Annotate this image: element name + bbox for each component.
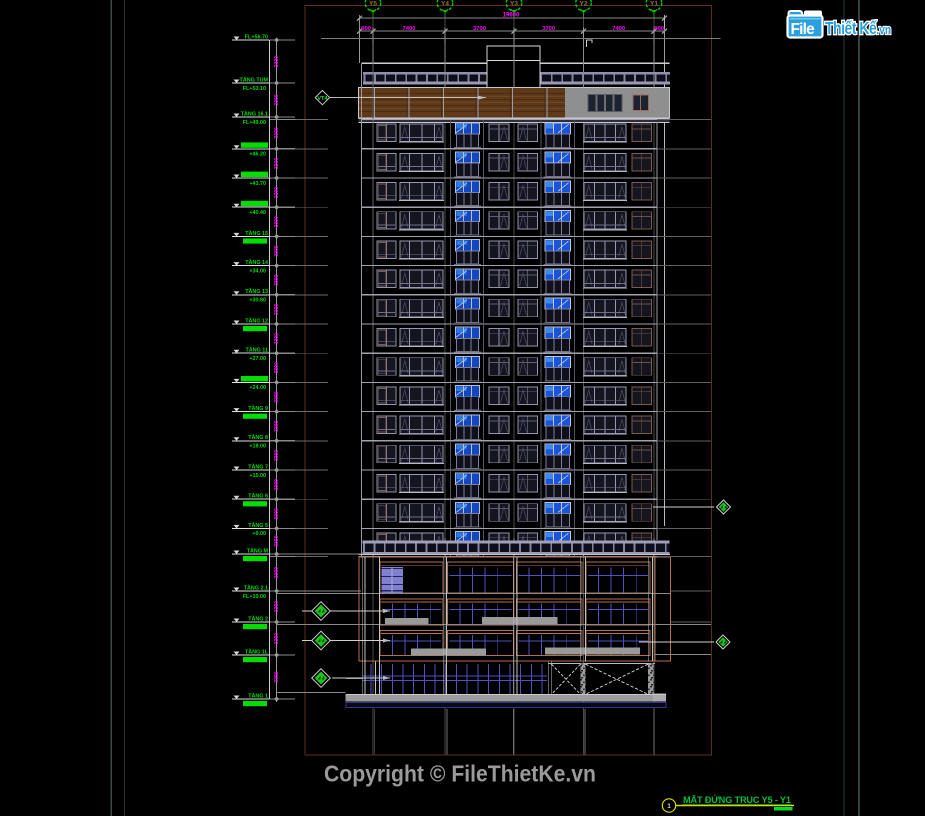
- svg-text:+27.00: +27.00: [249, 356, 266, 362]
- svg-text:3300: 3300: [274, 420, 280, 431]
- svg-text:Y3: Y3: [510, 1, 518, 8]
- svg-text:VT4: VT4: [317, 96, 328, 102]
- svg-text:3700: 3700: [473, 26, 486, 32]
- svg-text:7400: 7400: [403, 26, 416, 32]
- svg-text:TẦNG 1L: TẦNG 1L: [245, 648, 269, 655]
- svg-text:TẦNG 15: TẦNG 15: [245, 230, 268, 237]
- svg-text:File: File: [791, 21, 816, 38]
- svg-text:TẦNG 7: TẦNG 7: [248, 463, 268, 470]
- svg-text:+15.00: +15.00: [249, 473, 266, 479]
- svg-text:+30.80: +30.80: [249, 298, 266, 304]
- svg-text:TẦNG TUM: TẦNG TUM: [240, 76, 269, 83]
- svg-text:3300: 3300: [274, 333, 280, 344]
- svg-text:TẦNG 2.1: TẦNG 2.1: [244, 584, 268, 591]
- svg-text:TẦNG 6: TẦNG 6: [248, 493, 268, 500]
- svg-text:3300: 3300: [274, 362, 280, 373]
- svg-text:TẦNG M: TẦNG M: [247, 547, 269, 554]
- svg-text:+46.20: +46.20: [249, 152, 266, 158]
- svg-text:3300: 3300: [274, 216, 280, 227]
- svg-text:TẦNG 16.1: TẦNG 16.1: [241, 110, 268, 117]
- svg-text:900: 900: [361, 26, 371, 32]
- svg-text:FL+53.10: FL+53.10: [243, 86, 266, 92]
- svg-text:MẶT ĐỨNG TRỤC Y5 - Y1: MẶT ĐỨNG TRỤC Y5 - Y1: [683, 794, 791, 805]
- svg-text:TẦNG 8: TẦNG 8: [248, 434, 268, 441]
- svg-text:3300: 3300: [274, 601, 280, 612]
- svg-text:900: 900: [654, 26, 664, 32]
- svg-text:+9.00: +9.00: [252, 531, 266, 537]
- svg-text:+24.00: +24.00: [249, 385, 266, 391]
- svg-text:3300: 3300: [274, 187, 280, 198]
- svg-text:Y2: Y2: [580, 1, 588, 8]
- svg-text:3300: 3300: [274, 567, 280, 578]
- svg-text:FL+56.70: FL+56.70: [245, 34, 268, 40]
- svg-text:Copyright © FileThietKe.vn: Copyright © FileThietKe.vn: [324, 761, 596, 787]
- svg-text:3300: 3300: [274, 479, 280, 490]
- svg-text:TẦNG 12: TẦNG 12: [245, 317, 268, 324]
- svg-text:3300: 3300: [274, 304, 280, 315]
- svg-text:TẦNG 9: TẦNG 9: [248, 405, 268, 412]
- svg-text:3300: 3300: [274, 450, 280, 461]
- svg-text:3300: 3300: [274, 245, 280, 256]
- svg-text:3300: 3300: [274, 94, 280, 105]
- svg-text:3300: 3300: [274, 158, 280, 169]
- svg-text:3300: 3300: [274, 633, 280, 644]
- svg-text:3700: 3700: [542, 26, 555, 32]
- svg-text:7400: 7400: [612, 26, 625, 32]
- svg-text:.vn: .vn: [876, 23, 891, 37]
- svg-text:Y1: Y1: [650, 1, 658, 8]
- svg-text:3300: 3300: [274, 274, 280, 285]
- svg-text:FL+49.00: FL+49.00: [243, 120, 266, 126]
- svg-text:TẦNG 2: TẦNG 2: [248, 615, 268, 622]
- svg-text:19600: 19600: [503, 12, 520, 18]
- svg-text:TẦNG 11: TẦNG 11: [246, 347, 268, 354]
- svg-text:+40.40: +40.40: [249, 210, 266, 216]
- svg-text:TẦNG 1: TẦNG 1: [248, 692, 268, 699]
- svg-text:Thiết Kế: Thiết Kế: [825, 19, 877, 38]
- svg-text:3300: 3300: [274, 671, 280, 682]
- svg-text:3300: 3300: [274, 127, 280, 138]
- svg-text:TẦNG 14: TẦNG 14: [245, 259, 268, 266]
- svg-text:FL+10.00: FL+10.00: [243, 594, 266, 600]
- svg-text:3300: 3300: [274, 391, 280, 402]
- svg-text:TẦNG 13: TẦNG 13: [245, 288, 268, 295]
- svg-text:3300: 3300: [274, 56, 280, 67]
- svg-text:Y4: Y4: [441, 1, 449, 8]
- svg-text:+18.00: +18.00: [249, 444, 266, 450]
- svg-text:TẦNG 5: TẦNG 5: [248, 522, 268, 529]
- svg-text:3300: 3300: [274, 535, 280, 546]
- svg-text:Y5: Y5: [369, 1, 377, 8]
- svg-text:1: 1: [667, 803, 671, 810]
- svg-text:+34.00: +34.00: [249, 268, 266, 274]
- svg-text:3300: 3300: [274, 508, 280, 519]
- svg-text:+43.70: +43.70: [249, 181, 266, 187]
